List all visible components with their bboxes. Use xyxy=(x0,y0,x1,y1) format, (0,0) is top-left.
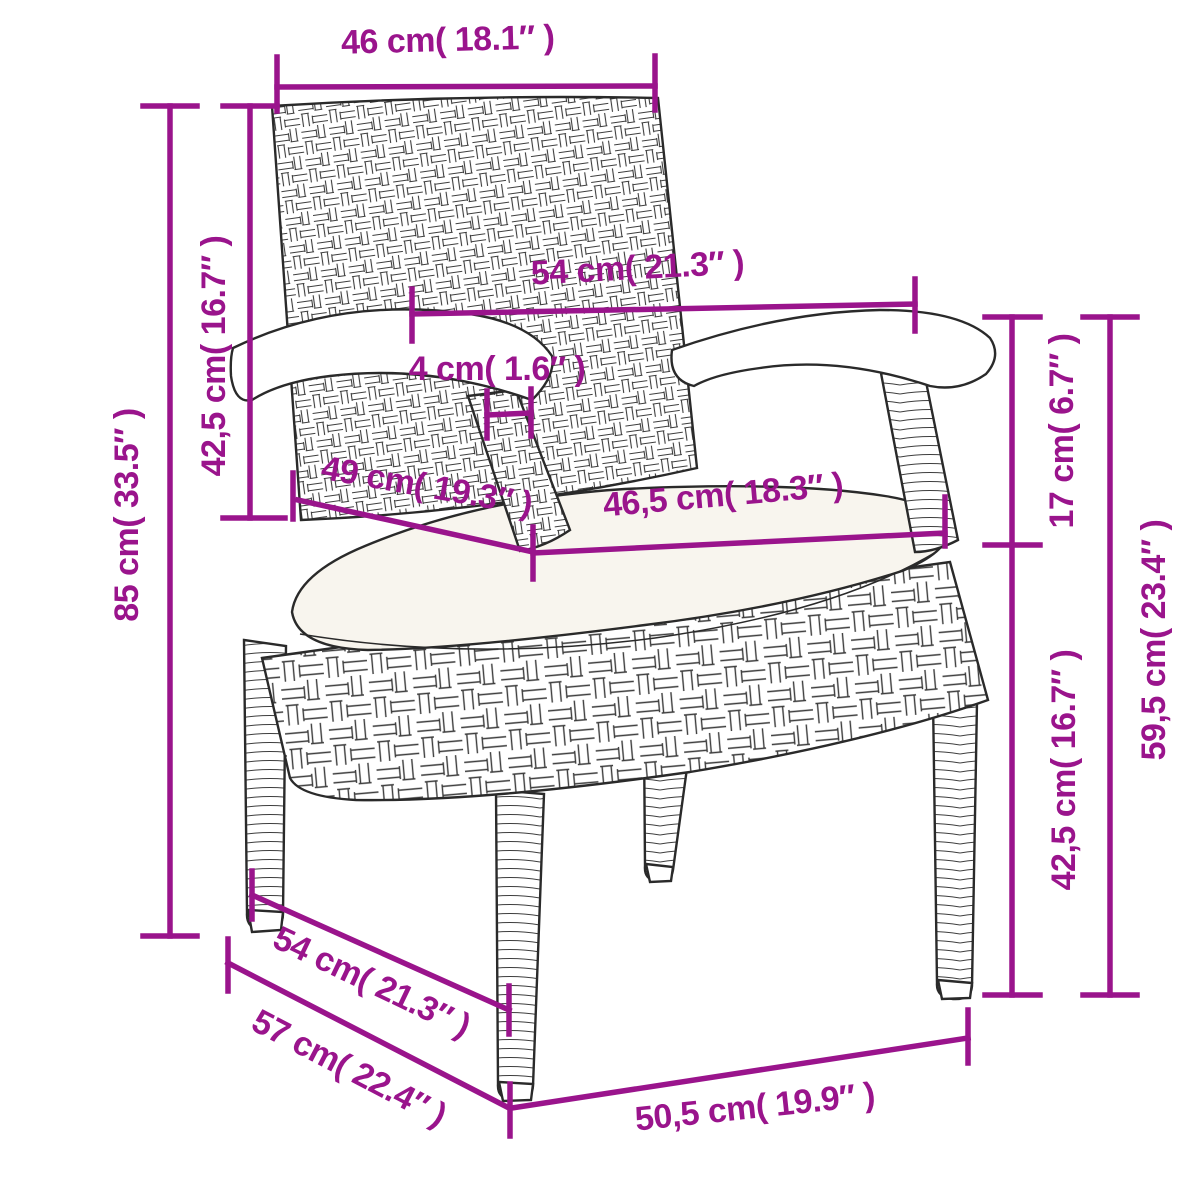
dim-seat-height xyxy=(985,545,1040,995)
dim-label-back-top-width: 46 cm( 18.1″ ) xyxy=(341,18,555,62)
chair-leg-front-right xyxy=(933,698,977,999)
chair-foot xyxy=(646,864,673,882)
dim-label-seat-to-arm: 17 cm( 6.7″ ) xyxy=(1043,334,1081,529)
dim-label-arm-height-ground: 59,5 cm( 23.4″ ) xyxy=(1135,520,1173,761)
dim-label-seat-height: 42,5 cm( 16.7″ ) xyxy=(1045,650,1083,891)
chair-foot xyxy=(499,1082,533,1101)
dim-overall-height xyxy=(143,106,197,936)
chair-armrest-right xyxy=(671,310,995,388)
diagram-page: 46 cm( 18.1″ ) 85 cm( 33.5″ ) 42,5 cm( 1… xyxy=(0,0,1200,1200)
dim-label-back-height: 42,5 cm( 16.7″ ) xyxy=(195,236,233,477)
dim-label-overall-height: 85 cm( 33.5″ ) xyxy=(108,408,146,621)
dim-label-armrest-thickness: 4 cm( 1.6″ ) xyxy=(409,350,586,388)
dim-arm-height-ground xyxy=(1083,317,1137,995)
chair-leg-front-left xyxy=(496,790,544,1100)
dimension-diagram: 46 cm( 18.1″ ) 85 cm( 33.5″ ) 42,5 cm( 1… xyxy=(0,0,1200,1200)
chair-foot xyxy=(938,980,972,999)
